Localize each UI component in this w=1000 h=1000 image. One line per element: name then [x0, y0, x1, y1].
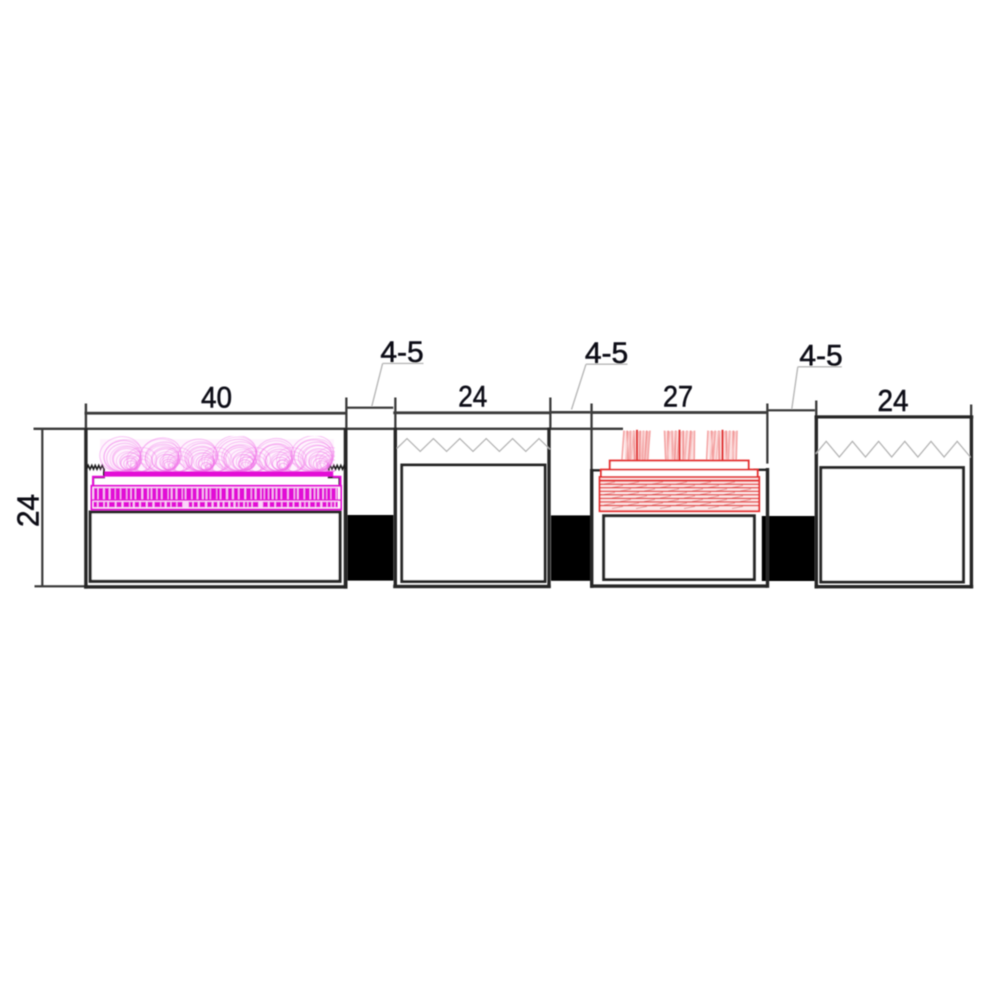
svg-text:24: 24 — [458, 381, 487, 414]
svg-text:4-5: 4-5 — [380, 336, 423, 369]
svg-text:4-5: 4-5 — [799, 340, 842, 373]
svg-text:24: 24 — [878, 383, 909, 418]
svg-text:40: 40 — [201, 382, 232, 415]
svg-text:27: 27 — [663, 381, 693, 414]
svg-text:4-5: 4-5 — [585, 337, 628, 370]
svg-text:24: 24 — [11, 494, 46, 527]
